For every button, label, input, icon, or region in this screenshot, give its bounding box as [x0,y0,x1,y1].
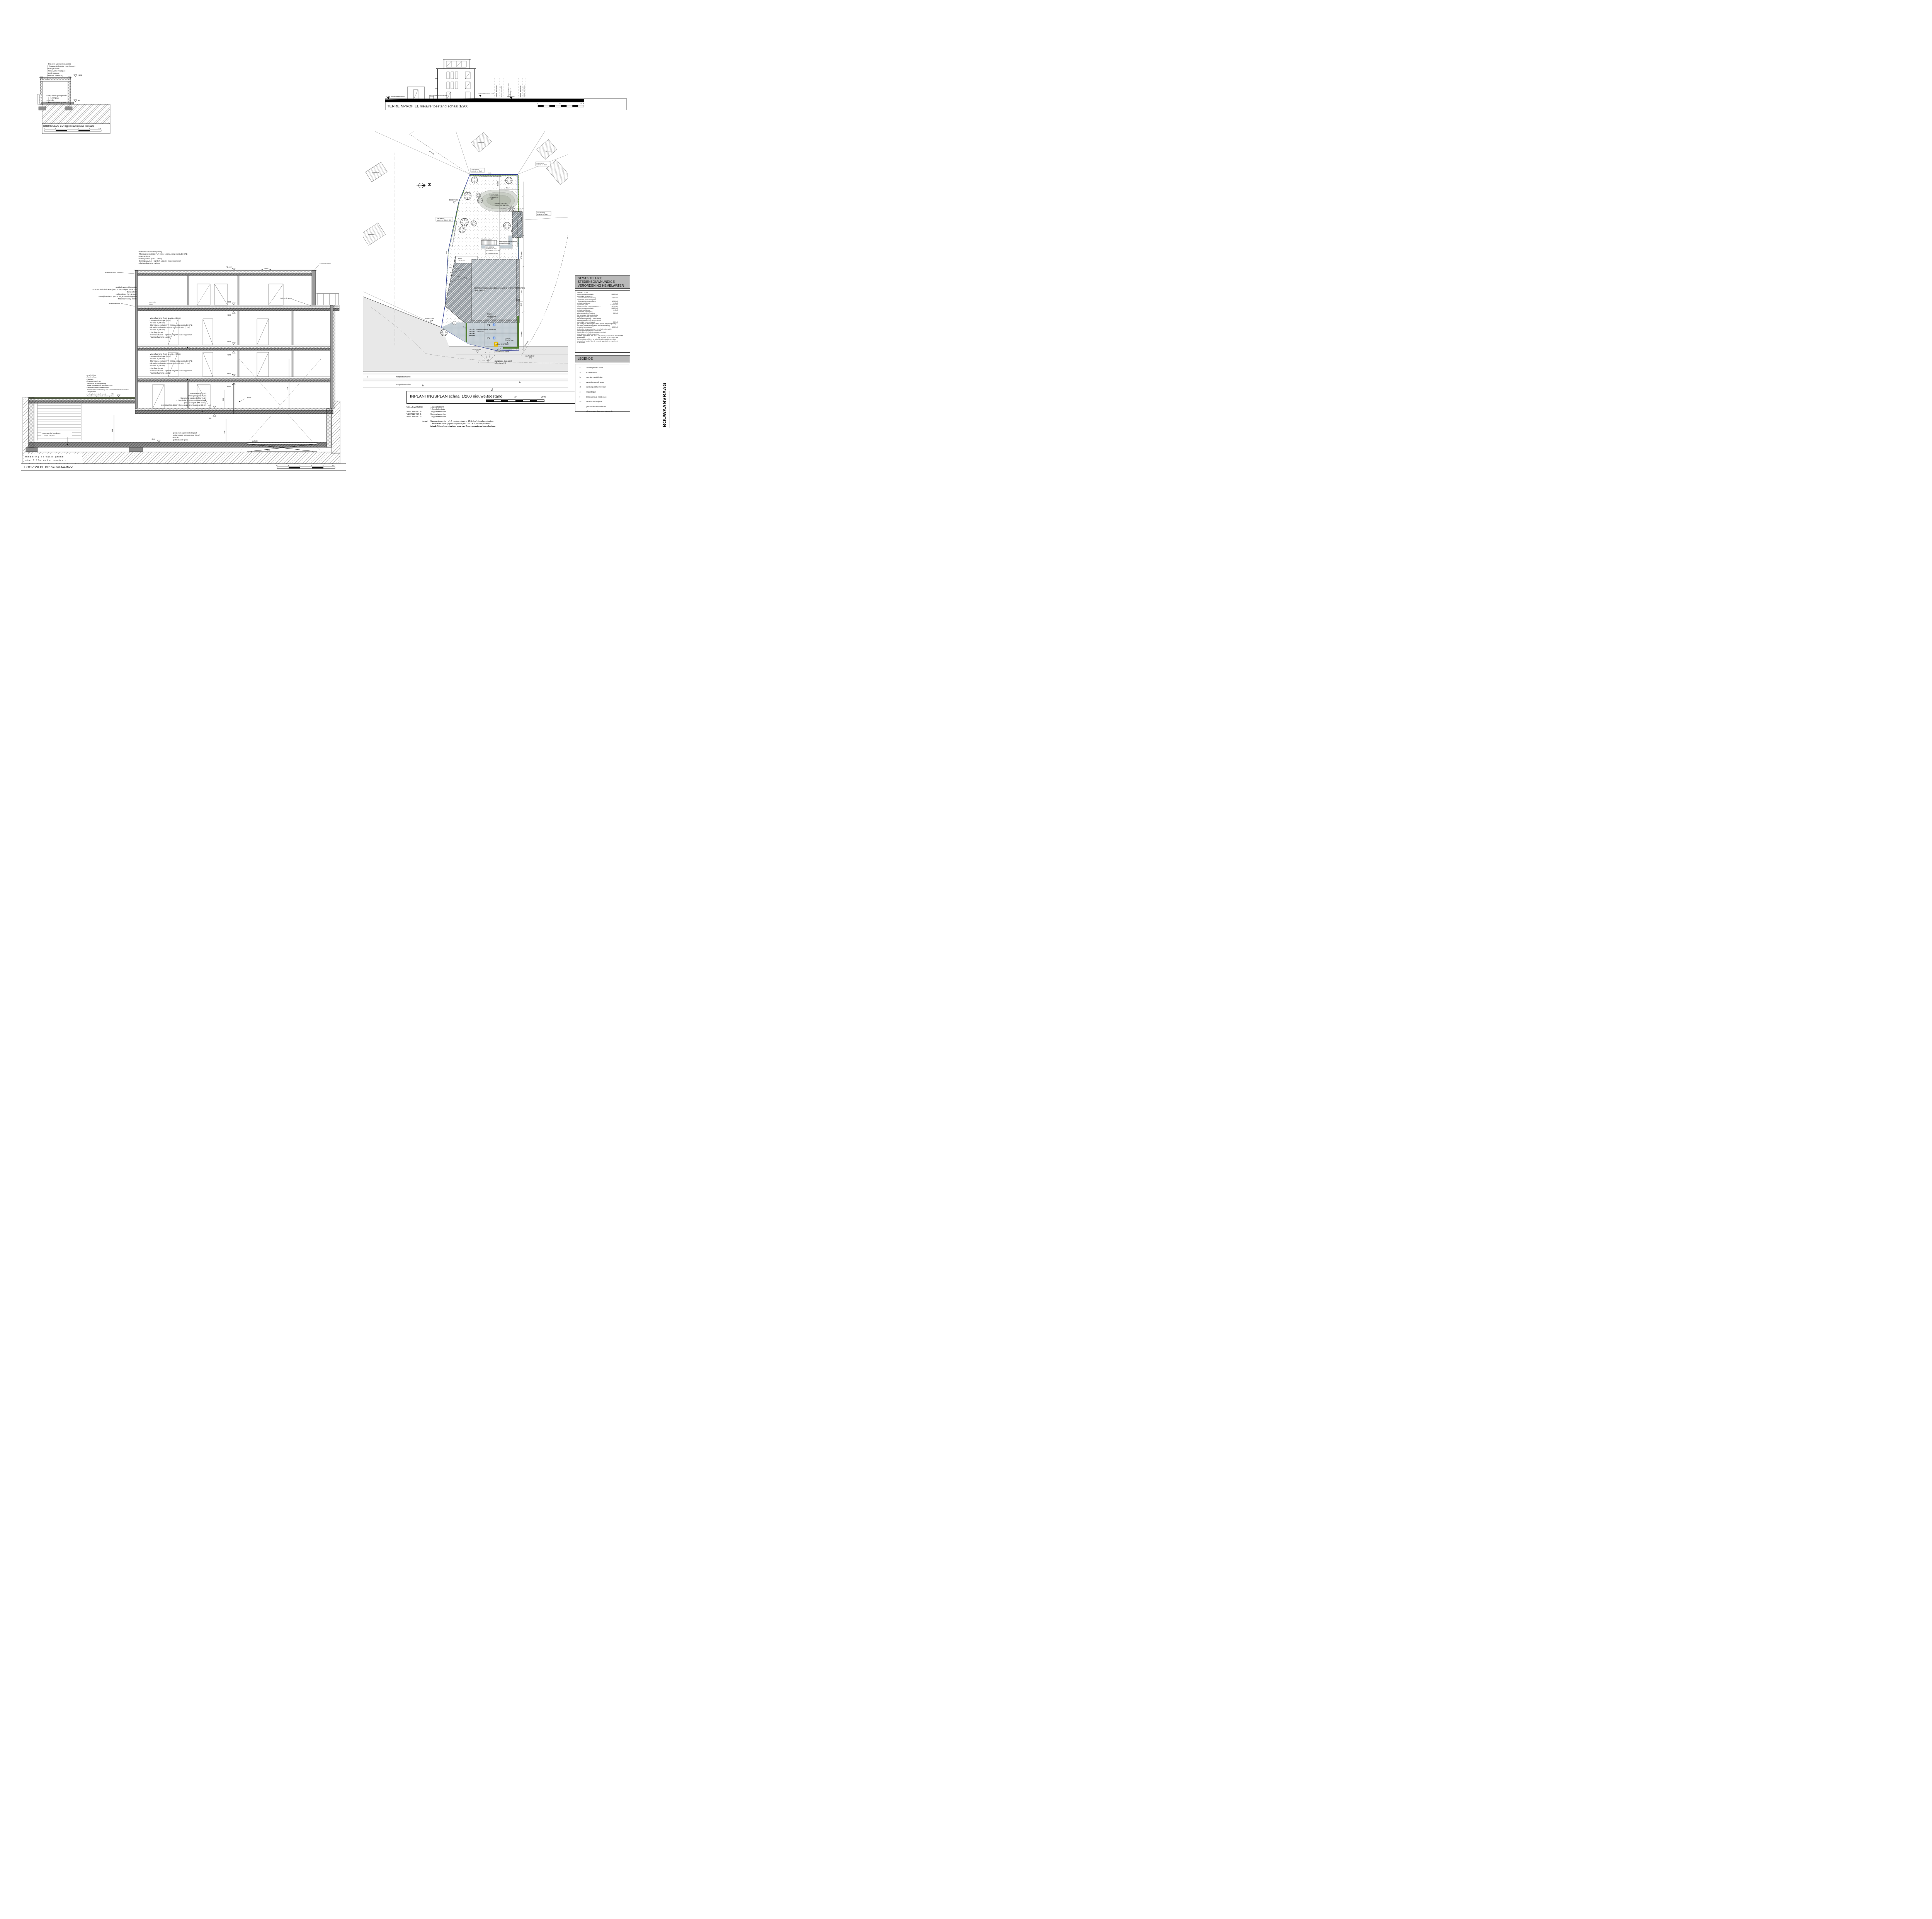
inplantingsplan-drawing: bodem wadi 33,15mTAW wadi min. 28,02m2 v… [363,131,568,391]
svg-text:33,98mTAW: 33,98mTAW [425,318,434,320]
svg-text:containerberging / fietsenberg: containerberging / fietsenberging [500,210,522,212]
svg-text:parkeerhaven asfalt: parkeerhaven asfalt [500,86,502,97]
svg-text:10 meter: 10 meter [524,340,529,346]
terrein-scalebar: 0 10 20 m [537,103,584,107]
svg-text:RWA opening brand 6m2: RWA opening brand 6m2 [43,432,61,434]
note-line: - Plafondafwerking pleister [149,337,207,339]
legende-symbol: f [577,395,586,400]
legende-label: TV-distributie [586,371,597,376]
bb-kelder-notes: - gewapende gepolierde betonplaat volgen… [172,432,214,441]
legende-row: geen erfdienstbaarheden [577,405,628,410]
svg-text:6,574: 6,574 [506,187,510,189]
svg-text:+1.162: +1.162 [226,266,232,268]
svg-text:-55: -55 [209,417,211,419]
autolift-label: autolift [252,440,258,442]
legende-row: a TV-distributie [577,371,628,376]
note-line: - Plafondafwerking pleister [149,372,207,375]
svg-text:rijweg Grote Baan asfalt: rijweg Grote Baan asfalt [495,360,512,362]
legende-label: opnamepunten foto's [586,366,603,371]
svg-text:+900: +900 [227,301,231,303]
legende-symbol: < [577,366,586,371]
legende-symbol: c [577,381,586,386]
legende-label: inspectieput [586,390,596,395]
svg-text:d: d [491,388,493,391]
verharding-label: waterdoorlatende verharding [476,328,496,330]
svg-text:b: b [519,382,521,384]
svg-text:gewestweg N12: gewestweg N12 [510,88,512,97]
svg-text:sectie A, nr. 38y4: sectie A, nr. 38y4 [486,248,497,250]
bb-roof-notes-2: - Dubbele waterdichtingslaag- Thermische… [89,286,137,301]
svg-text:voetpad betondallen: voetpad betondallen [495,343,509,345]
svg-text:voetpad betondallen: voetpad betondallen [524,85,525,97]
svg-text:isolerende: isolerende [149,301,156,303]
svg-text:bijgebouw: bijgebouw [545,150,551,152]
totals-row: totaal: 16 parkeerplaatsen waarvan 2 aan… [430,425,569,428]
svg-text:sectie A, nr. 38b5: sectie A, nr. 38b5 [536,164,547,166]
bb-groendak-notes: - Vegetatielaag- Substraatlaag- Filterla… [86,374,125,397]
note-line: - Houten roostering [47,75,101,77]
svg-text:isolerende steen: isolerende steen [281,297,292,299]
floor-slabs [134,269,339,414]
svg-text:2: 2 [481,355,482,356]
north-arrow: N [417,183,431,188]
svg-text:5 m: 5 m [332,464,335,466]
hemelwater-header: GEWESTELIJKE STEDENBOUWKUNDIGE VERORDENI… [575,275,630,289]
svg-text:-16,66-: -16,66- [488,172,492,174]
svg-text:3: 3 [311,464,312,466]
legende-row: b openbare verlichting [577,376,628,381]
poort-label: poort [247,396,252,398]
svg-text:-315: -315 [151,438,155,440]
svg-text:rijweg Grote Baan asfalt: rijweg Grote Baan asfalt [508,83,510,97]
svg-text:Grote Baan 10: Grote Baan 10 [474,290,485,292]
svg-text:±0: ±0 [209,404,211,406]
svg-text:+320: +320 [227,372,231,374]
svg-text:5: 5 [494,355,495,356]
svg-text:595: 595 [286,386,288,389]
totaal-label: totaal: [406,420,430,428]
legende-body: < opnamepunten foto's a TV-distributie b… [575,364,630,412]
note-line: - Plafondafwerking pleister [138,263,211,265]
svg-text:-6,37-: -6,37- [511,340,514,341]
svg-text:34,15mTAW: 34,15mTAW [487,315,497,317]
legende-label: alle nutsvoorzieningen aanwezig [586,410,612,412]
svg-text:perceelsopp. 1.317 m2: perceelsopp. 1.317 m2 [486,250,500,252]
note-line: - Predallen volgens studie betoningenieu… [86,395,125,397]
svg-text:e: e [454,323,455,325]
legende-label: aansluitpunt vuil water [586,381,604,386]
svg-text:10: 10 [559,103,561,105]
bb-title: DOORSNEDE BB' nieuwe toestand [24,466,73,469]
svg-text:20 m: 20 m [580,103,584,105]
wadi-label: bodem wadi [490,194,498,196]
legende-label: aansluitpunt hemelwater [586,385,606,390]
bb-scalebar: 0 1 2 3 4 5 m [276,464,335,469]
legende-row: c aansluitpunt vuil water [577,381,628,386]
legende-row: alle nutsvoorzieningen aanwezig [577,410,628,412]
svg-text:volume min. 8.518 liter: volume min. 8.518 liter [495,205,510,207]
svg-text:1ste afdeling: 1ste afdeling [536,163,544,164]
svg-text:2: 2 [299,464,301,466]
legende-label: distributiekast electriciteit [586,395,606,400]
terreinprofiel-drawing: TERREINPROFIEL nieuwe toestand schaal 1/… [383,54,632,112]
legende-row: e inspectieput [577,390,628,395]
svg-text:voetpad betondallen: voetpad betondallen [496,85,497,97]
legende-symbol: EL [577,400,586,405]
street-labels: voetpad betondallen parkeerhaven asfalt … [496,83,525,97]
svg-text:-15,39-: -15,39- [520,212,521,216]
legende-row: f distributiekast electriciteit [577,395,628,400]
svg-text:1ste afdeling: 1ste afdeling [471,169,479,170]
legende-row: EL electrische laadpaal [577,400,628,405]
svg-text:4: 4 [490,352,490,354]
svg-text:wadi min. 28,02m2: wadi min. 28,02m2 [495,203,507,204]
plan-stats: GELIJKVLOERS:1 appartement 1 handelsruim… [406,406,569,428]
svg-text:1ste afdeling: 1ste afdeling [437,218,444,219]
svg-text:-11,48-: -11,48- [520,256,522,260]
svg-text:1ste afdeling: 1ste afdeling [537,212,545,214]
svg-text:45,120: 45,120 [497,181,499,186]
svg-text:5 m: 5 m [99,127,102,129]
svg-text:isolerende steen: isolerende steen [320,263,331,265]
p2-label: P2 [487,337,490,340]
svg-text:bijgebouw: bijgebouw [478,142,484,143]
svg-text:fietspad betondallen: fietspad betondallen [396,376,411,378]
svg-text:3: 3 [485,352,486,354]
bouwaanvraag-rule [670,391,670,428]
svg-text:sectie A, nr. 38p4 & 38t3: sectie A, nr. 38p4 & 38t3 [437,219,451,221]
bb-floor-notes-2: - Vloerafwerking (hout, tegels,...) (2 c… [149,354,207,375]
legende-header: LEGENDE [575,355,630,362]
legende-symbol [577,410,586,412]
svg-text:sectie A, nr. 38a6: sectie A, nr. 38a6 [537,214,548,215]
svg-text:+860: +860 [227,314,231,316]
garden-level: 33,78mTAW [449,199,458,201]
svg-text:17,000: 17,000 [520,331,522,337]
autolift-garage [234,359,321,452]
earth-left [23,397,29,456]
profiel-note: huidig profiel gelijk aan toekomstig pro… [429,95,447,96]
legende-label: geen erfdienstbaarheden [586,405,606,410]
svg-text:0: 0 [537,103,538,105]
isolerende-steen-labels: isolerende steen isolerende steen isoler… [105,263,331,306]
bouwaanvraag-sheet: { "page": {"vertical_label": "BOUWAANVRA… [0,0,679,480]
bb-ground-notes: - Vloerafwerking (2 cm)- Chape gewapend … [159,393,206,407]
hemelwater-body: OPPERVLAKTES horizontale dakoppervlakte:… [575,290,630,353]
cc-perceelsgrens-label: perceelsgrens [39,95,41,104]
svg-text:bijgebouw: bijgebouw [368,234,374,235]
svg-text:min. 0,80m onder maaiveld: min. 0,80m onder maaiveld [25,459,66,462]
svg-text:+570: +570 [227,354,231,356]
legende-label: openbare verlichting [586,376,602,381]
legende-row: < opnamepunten foto's [577,366,628,371]
svg-text:gewestweg N12: gewestweg N12 [495,362,506,364]
svg-text:bijgebouw: bijgebouw [372,172,379,173]
svg-text:+610: +610 [227,341,231,343]
svg-text:terras: terras [458,257,462,259]
svg-text:10 meter: 10 meter [429,150,435,155]
svg-text:229: 229 [111,429,113,432]
svg-text:parkeerhaven asfalt: parkeerhaven asfalt [495,351,509,353]
cc-roof-notes: - Dubbele waterdichtingslaag- Thermische… [47,63,101,78]
svg-text:1ste afdeling: 1ste afdeling [486,246,494,248]
building-label: BOUWEN VAN EEN HANDELSRUIMTE & 9 APPARTE… [474,287,525,289]
dorpel-label: dorpel [487,313,492,315]
p1-label: P1 [487,324,490,326]
plan-title: INPLANTINGSPLAN schaal 1/200 nieuwe toes… [410,394,502,399]
svg-text:1: 1 [288,464,289,466]
svg-text:in te richten als tuin: in te richten als tuin [486,253,498,254]
legende-row: d aansluitpunt hemelwater [577,385,628,390]
wheelchair-icon: ♿ [493,337,496,340]
bb-floor-notes-1: - Vloerafwerking (hout, tegels,...) (2 c… [149,318,207,339]
note-line: - Gestabiliseerde grond [46,102,93,104]
bijgebouw-nieuw-label: BOUWEN VAN EEN BIJGEBOUW [500,208,524,210]
ground-hatch [42,104,110,124]
legende-symbol: e [577,390,586,395]
level-mid: 34,15 mTAW nieuwe 0-pas [478,93,494,95]
note-line: - Betonplaat / predallen volgens studie … [159,404,206,406]
tuinpad-label: waterdoorlatende verharding [499,241,517,242]
svg-text:-49,08-: -49,08- [446,250,448,255]
svg-text:vluchttrap kelder: vluchttrap kelder [481,238,493,240]
svg-text:33,15mTAW: 33,15mTAW [490,196,498,198]
svg-text:N: N [427,183,431,186]
legende-symbol: a [577,371,586,376]
svg-text:13,70 m2: 13,70 m2 [458,260,465,262]
legende-symbol: d [577,385,586,390]
svg-text:113,62 m2: 113,62 m2 [476,331,484,333]
svg-text:9,000: 9,000 [520,216,522,221]
plan-scalebar [486,399,544,402]
cc-floor-notes: - Gepolierde gewapende betonplaat- PE-fo… [46,95,93,104]
bouwaanvraag-label: BOUWAANVRAAG [662,389,667,427]
elevation-building [407,59,476,100]
svg-text:+280: +280 [227,386,231,388]
svg-text:-24,18-: -24,18- [520,303,522,307]
groendak [29,397,135,403]
legende-label: electrische laadpaal [586,400,602,405]
svg-text:b: b [422,385,424,387]
svg-text:33,95mTAW: 33,95mTAW [472,348,481,350]
wheelchair-icon: ♿ [493,323,496,326]
svg-text:17,000: 17,000 [520,290,522,296]
svg-text:4: 4 [323,464,324,466]
note-line: - gestabiliseerde grond [172,439,214,441]
svg-text:steen: steen [149,303,153,305]
svg-text:3,000: 3,000 [516,299,520,301]
svg-text:-375: -375 [266,449,270,451]
note-line: - Plafondafwerking pleister [89,298,137,300]
svg-text:voetpad betondallen: voetpad betondallen [396,384,411,386]
hemelwater-line: in de bodem. [577,342,628,343]
legende-symbol: b [577,376,586,381]
svg-text:tuinpad 33,36 m2: tuinpad 33,36 m2 [499,243,510,244]
legende-symbol [577,405,586,410]
svg-text:isolerende steen: isolerende steen [109,303,120,304]
svg-text:isolerende steen: isolerende steen [105,272,116,274]
bb-roof-notes: - Dubbele waterdichtingslaag- Thermische… [138,251,211,265]
svg-text:0: 0 [276,464,277,466]
svg-text:e: e [367,376,369,378]
svg-text:260: 260 [223,430,225,433]
svg-text:280: 280 [222,398,224,401]
svg-text:fundering op vaste grond: fundering op vaste grond [25,456,64,458]
svg-text:fietspad betondallen: fietspad betondallen [520,86,521,97]
svg-text:haag in bladhoudend groen op d: haag in bladhoudend groen op de perceels… [517,220,518,247]
svg-text:sectie A, nr. 38z4: sectie A, nr. 38z4 [471,170,482,172]
cc-title: DOORSNEDE CC' bijgebouw nieuwe toestand [43,125,95,127]
svg-text:33,78mTAW: 33,78mTAW [526,355,534,357]
svg-text:2 x 2,50 x 1,20m: 2 x 2,50 x 1,20m [43,435,54,437]
level-left: 33,78 mTAW bestaand maaiveld [386,96,405,97]
svg-text:1: 1 [478,362,479,363]
terrein-title: TERREINPROFIEL nieuwe toestand schaal 1/… [387,104,468,109]
